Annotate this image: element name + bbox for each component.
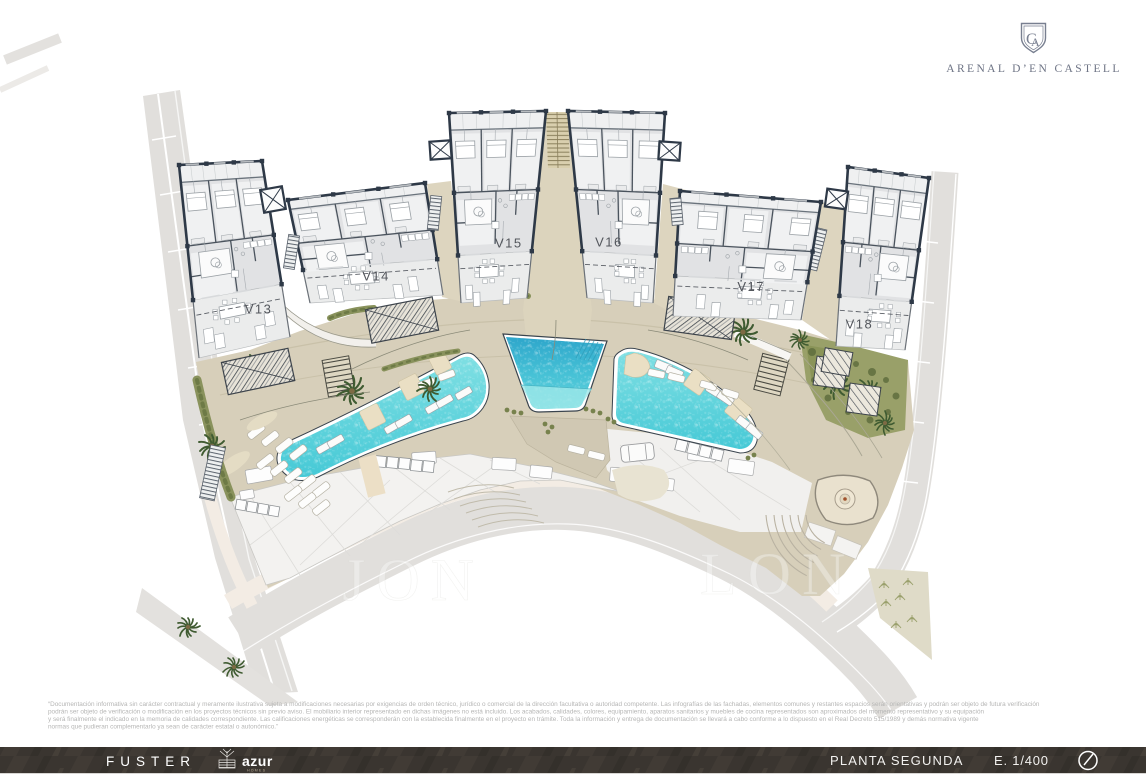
svg-text:podrán ser objeto de verificac: podrán ser objeto de verificación o modi… bbox=[48, 709, 984, 716]
svg-text:“Documentación informativa sin: “Documentación informativa sin carácter … bbox=[48, 701, 1040, 708]
svg-text:azur: azur bbox=[242, 753, 273, 769]
svg-text:V15: V15 bbox=[495, 236, 523, 251]
svg-text:HOMES: HOMES bbox=[247, 769, 266, 773]
svg-text:V14: V14 bbox=[362, 268, 390, 283]
svg-text:E. 1/400: E. 1/400 bbox=[994, 753, 1049, 768]
svg-text:FUSTER: FUSTER bbox=[106, 754, 196, 769]
svg-text:V16: V16 bbox=[595, 234, 623, 249]
svg-text:PLANTA SEGUNDA: PLANTA SEGUNDA bbox=[830, 753, 964, 768]
svg-text:A: A bbox=[1031, 35, 1040, 49]
svg-text:V17: V17 bbox=[737, 279, 765, 294]
svg-text:JON: JON bbox=[342, 547, 485, 613]
svg-text:V13: V13 bbox=[245, 301, 273, 316]
svg-text:V18: V18 bbox=[846, 317, 874, 332]
svg-text:LON: LON bbox=[700, 541, 856, 607]
svg-text:y será finalmente el indicado: y será finalmente el indicado en la memo… bbox=[48, 716, 979, 723]
svg-text:normas que pudieran complement: normas que pudieran complementarlo ya se… bbox=[48, 724, 278, 731]
svg-text:ARENAL D’EN CASTELL: ARENAL D’EN CASTELL bbox=[946, 63, 1122, 75]
